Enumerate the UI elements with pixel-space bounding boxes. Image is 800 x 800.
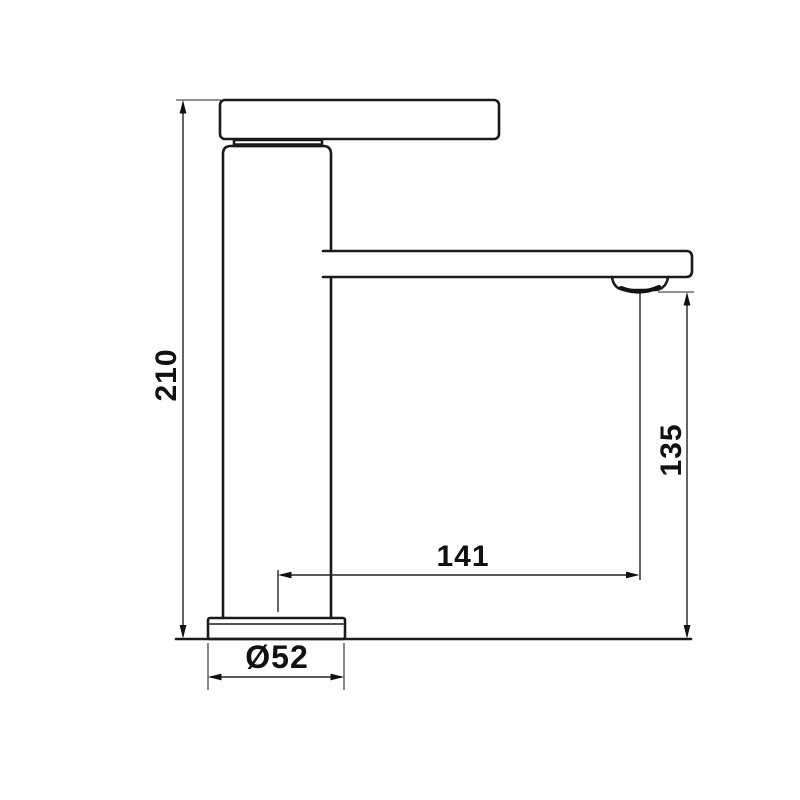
arrow-up-icon xyxy=(180,100,187,114)
dimension-spout-reach-label: 141 xyxy=(436,540,489,573)
dimension-overall-height: 210 xyxy=(150,100,221,639)
faucet-spout xyxy=(323,251,692,277)
dimension-base-diameter: Ø52 xyxy=(208,639,344,690)
faucet-outline xyxy=(176,100,692,639)
arrow-left-icon xyxy=(278,572,292,579)
faucet-body-column xyxy=(223,146,331,618)
dimension-overall-height-label: 210 xyxy=(150,348,183,401)
dimension-spout-height: 135 xyxy=(655,292,694,639)
arrow-right-icon xyxy=(331,674,345,681)
arrow-down-icon xyxy=(180,625,187,639)
arrow-up-icon xyxy=(684,292,691,306)
faucet-aerator xyxy=(612,277,668,292)
arrow-right-icon xyxy=(626,572,640,579)
faucet-handle xyxy=(220,100,499,139)
faucet-technical-drawing: 210 135 141 Ø52 xyxy=(0,0,800,800)
dimension-spout-height-label: 135 xyxy=(655,423,688,476)
arrow-left-icon xyxy=(208,674,222,681)
drawing-canvas: 210 135 141 Ø52 xyxy=(0,0,800,800)
faucet-base xyxy=(208,618,345,639)
arrow-down-icon xyxy=(684,625,691,639)
dimension-base-diameter-label: Ø52 xyxy=(245,639,308,675)
